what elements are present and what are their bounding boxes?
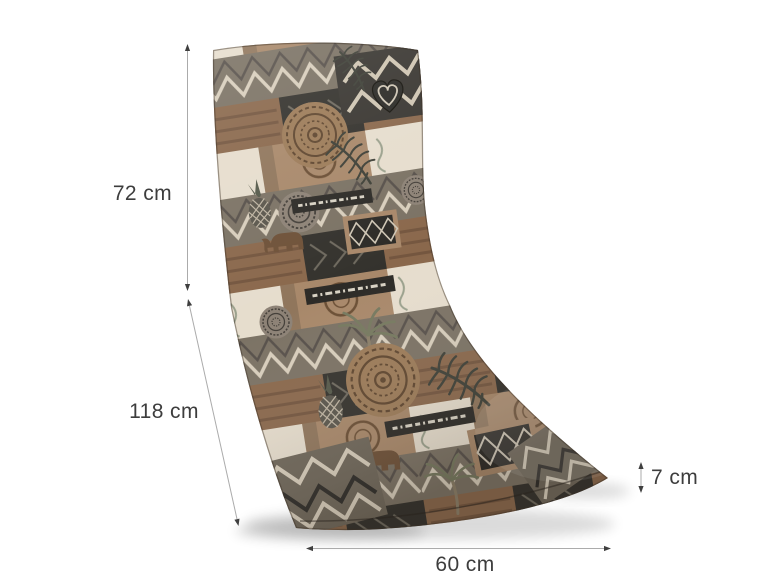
dimension-label-seat: 118 cm — [124, 399, 204, 424]
dimension-line-backrest — [185, 44, 190, 291]
dimension-label-thickness: 7 cm — [651, 465, 698, 490]
dimension-line-thickness — [638, 462, 643, 493]
cushion-illustration — [0, 0, 772, 579]
dimension-line-width — [306, 546, 611, 551]
dimension-label-width: 60 cm — [425, 552, 505, 577]
cushion-photo — [180, 20, 650, 560]
product-dimension-figure: 72 cm 118 cm 7 cm 60 cm — [0, 0, 772, 579]
dimension-label-backrest: 72 cm — [92, 181, 172, 206]
